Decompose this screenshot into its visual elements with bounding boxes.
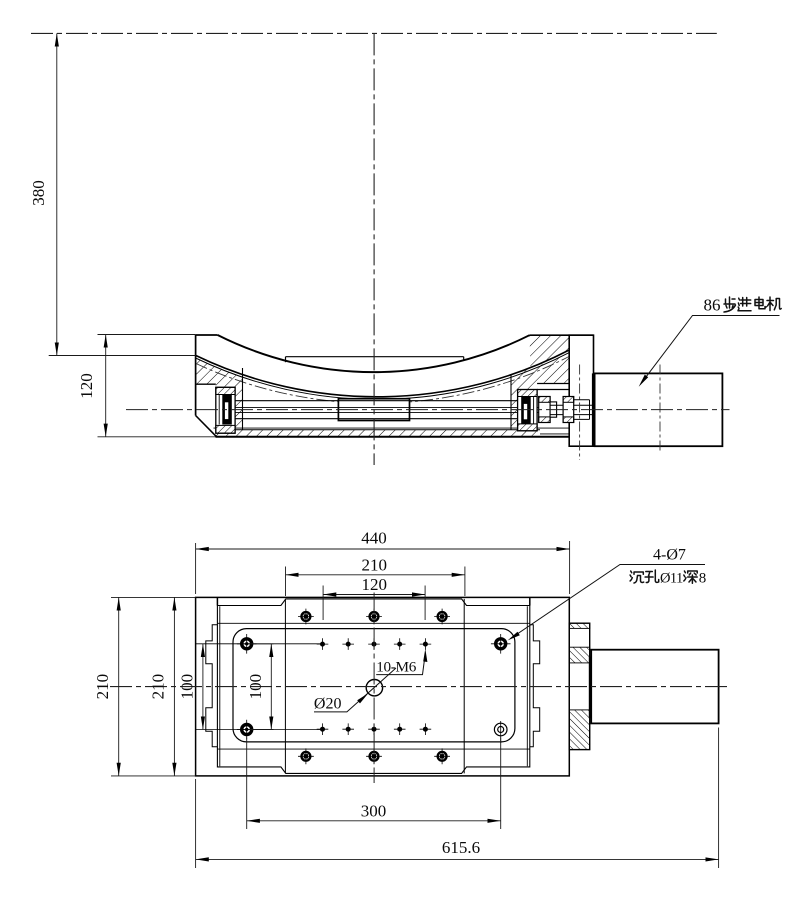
svg-text:120: 120 [77,373,96,399]
svg-text:100: 100 [178,674,197,700]
svg-text:4-Ø7: 4-Ø7 [653,547,686,564]
svg-text:8: 8 [699,571,707,587]
svg-text:380: 380 [29,180,48,206]
svg-text:10-M6: 10-M6 [376,659,417,676]
svg-text:210: 210 [361,556,387,575]
svg-text:Ø20: Ø20 [314,696,342,713]
svg-text:Ø11: Ø11 [660,571,683,587]
svg-text:210: 210 [93,674,112,700]
svg-text:100: 100 [246,674,265,700]
svg-text:210: 210 [149,674,168,700]
svg-text:300: 300 [361,802,387,821]
svg-text:615.6: 615.6 [442,838,480,857]
svg-text:440: 440 [361,529,387,548]
svg-text:86: 86 [704,296,721,315]
svg-text:120: 120 [361,575,387,594]
